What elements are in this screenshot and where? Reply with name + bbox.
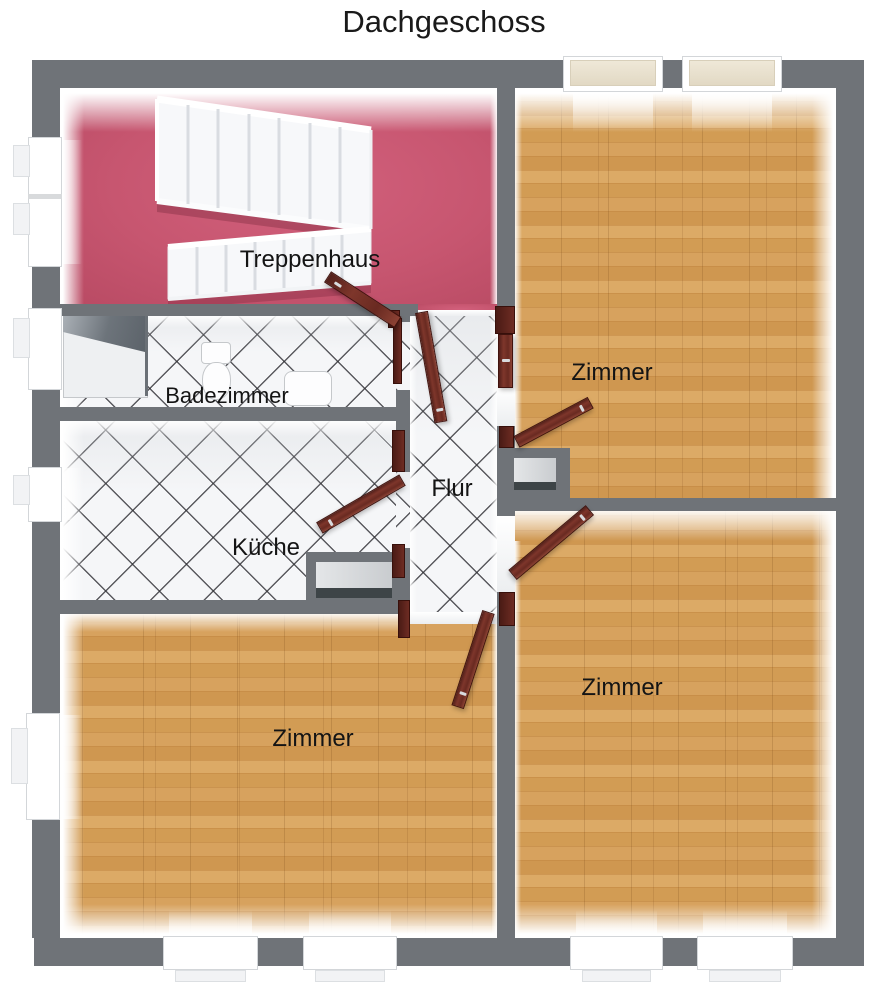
skylight-light bbox=[692, 92, 772, 132]
window bbox=[28, 137, 62, 267]
doorway bbox=[497, 388, 515, 426]
page-title: Dachgeschoss bbox=[0, 4, 888, 40]
window-light bbox=[169, 910, 252, 938]
window bbox=[163, 936, 258, 970]
door-frame bbox=[398, 600, 410, 638]
wall-inner-face bbox=[60, 614, 410, 632]
wall-zimmer-divider-v bbox=[497, 592, 515, 938]
window-sill bbox=[582, 970, 651, 982]
door-handle bbox=[459, 691, 467, 696]
window-sill bbox=[13, 203, 30, 235]
room-label-flur: Flur bbox=[431, 475, 472, 503]
skylight-top bbox=[689, 60, 775, 86]
door-handle bbox=[328, 519, 334, 527]
window-light bbox=[60, 140, 82, 264]
window-sill bbox=[315, 970, 385, 982]
chimney-flur-shadow bbox=[514, 482, 556, 490]
wall-inner-face bbox=[490, 88, 497, 304]
wall-inner-face bbox=[490, 316, 497, 614]
wall-inner-face bbox=[410, 316, 417, 614]
skylight-light bbox=[573, 92, 653, 132]
floor-zimmer-bottom-right bbox=[515, 511, 838, 938]
door-frame bbox=[392, 430, 405, 472]
wall-bad-kueche bbox=[60, 407, 410, 421]
skylight-top bbox=[570, 60, 656, 86]
window bbox=[697, 936, 793, 970]
room-label-kueche: Küche bbox=[232, 534, 300, 562]
window bbox=[26, 713, 60, 820]
room-label-zimmer-bottom-left: Zimmer bbox=[272, 725, 353, 753]
floor-zimmer-bottom-left bbox=[60, 614, 497, 938]
window-sill bbox=[13, 475, 30, 505]
sink bbox=[284, 371, 332, 406]
floor-zimmer-top-right bbox=[515, 88, 838, 498]
door-handle bbox=[502, 359, 510, 362]
window-sill bbox=[13, 318, 30, 358]
doorway bbox=[497, 516, 515, 592]
room-label-zimmer-bottom-right: Zimmer bbox=[581, 674, 662, 702]
door-handle bbox=[334, 281, 342, 288]
window-light bbox=[576, 910, 657, 938]
wall-right bbox=[836, 60, 864, 966]
window bbox=[28, 308, 62, 390]
room-label-treppenhaus: Treppenhaus bbox=[240, 246, 381, 274]
window bbox=[570, 936, 663, 970]
room-label-zimmer-top-right: Zimmer bbox=[571, 359, 652, 387]
window-sill bbox=[709, 970, 781, 982]
window-light bbox=[309, 910, 391, 938]
wall-treppenhaus-zimmer bbox=[497, 88, 515, 314]
window-light bbox=[60, 715, 82, 819]
window-mullion bbox=[28, 194, 62, 199]
wall-inner-face bbox=[515, 541, 521, 938]
window-light bbox=[703, 910, 787, 938]
door-handle bbox=[579, 405, 585, 413]
window-sill bbox=[11, 728, 28, 784]
door-handle bbox=[579, 514, 586, 521]
window-sill bbox=[175, 970, 246, 982]
shower-glass-edge bbox=[145, 316, 148, 396]
chimney-kueche-shadow bbox=[316, 588, 392, 598]
room-label-badezimmer: Badezimmer bbox=[165, 383, 288, 409]
door-frame bbox=[499, 592, 515, 626]
door-frame bbox=[495, 306, 515, 334]
threshold bbox=[418, 310, 497, 316]
window-sill bbox=[13, 145, 30, 177]
door-frame bbox=[499, 426, 514, 448]
window bbox=[28, 467, 62, 522]
door-zimmer-top-right-closed bbox=[498, 334, 513, 388]
window bbox=[303, 936, 397, 970]
toilet-tank bbox=[201, 342, 231, 364]
window-light bbox=[60, 468, 82, 520]
door-handle bbox=[436, 408, 443, 412]
floor-plan: Treppenhaus Zimmer Badezimmer Flur Küche… bbox=[0, 0, 888, 1000]
wall-inner-face bbox=[60, 421, 396, 437]
door-frame bbox=[392, 544, 405, 578]
